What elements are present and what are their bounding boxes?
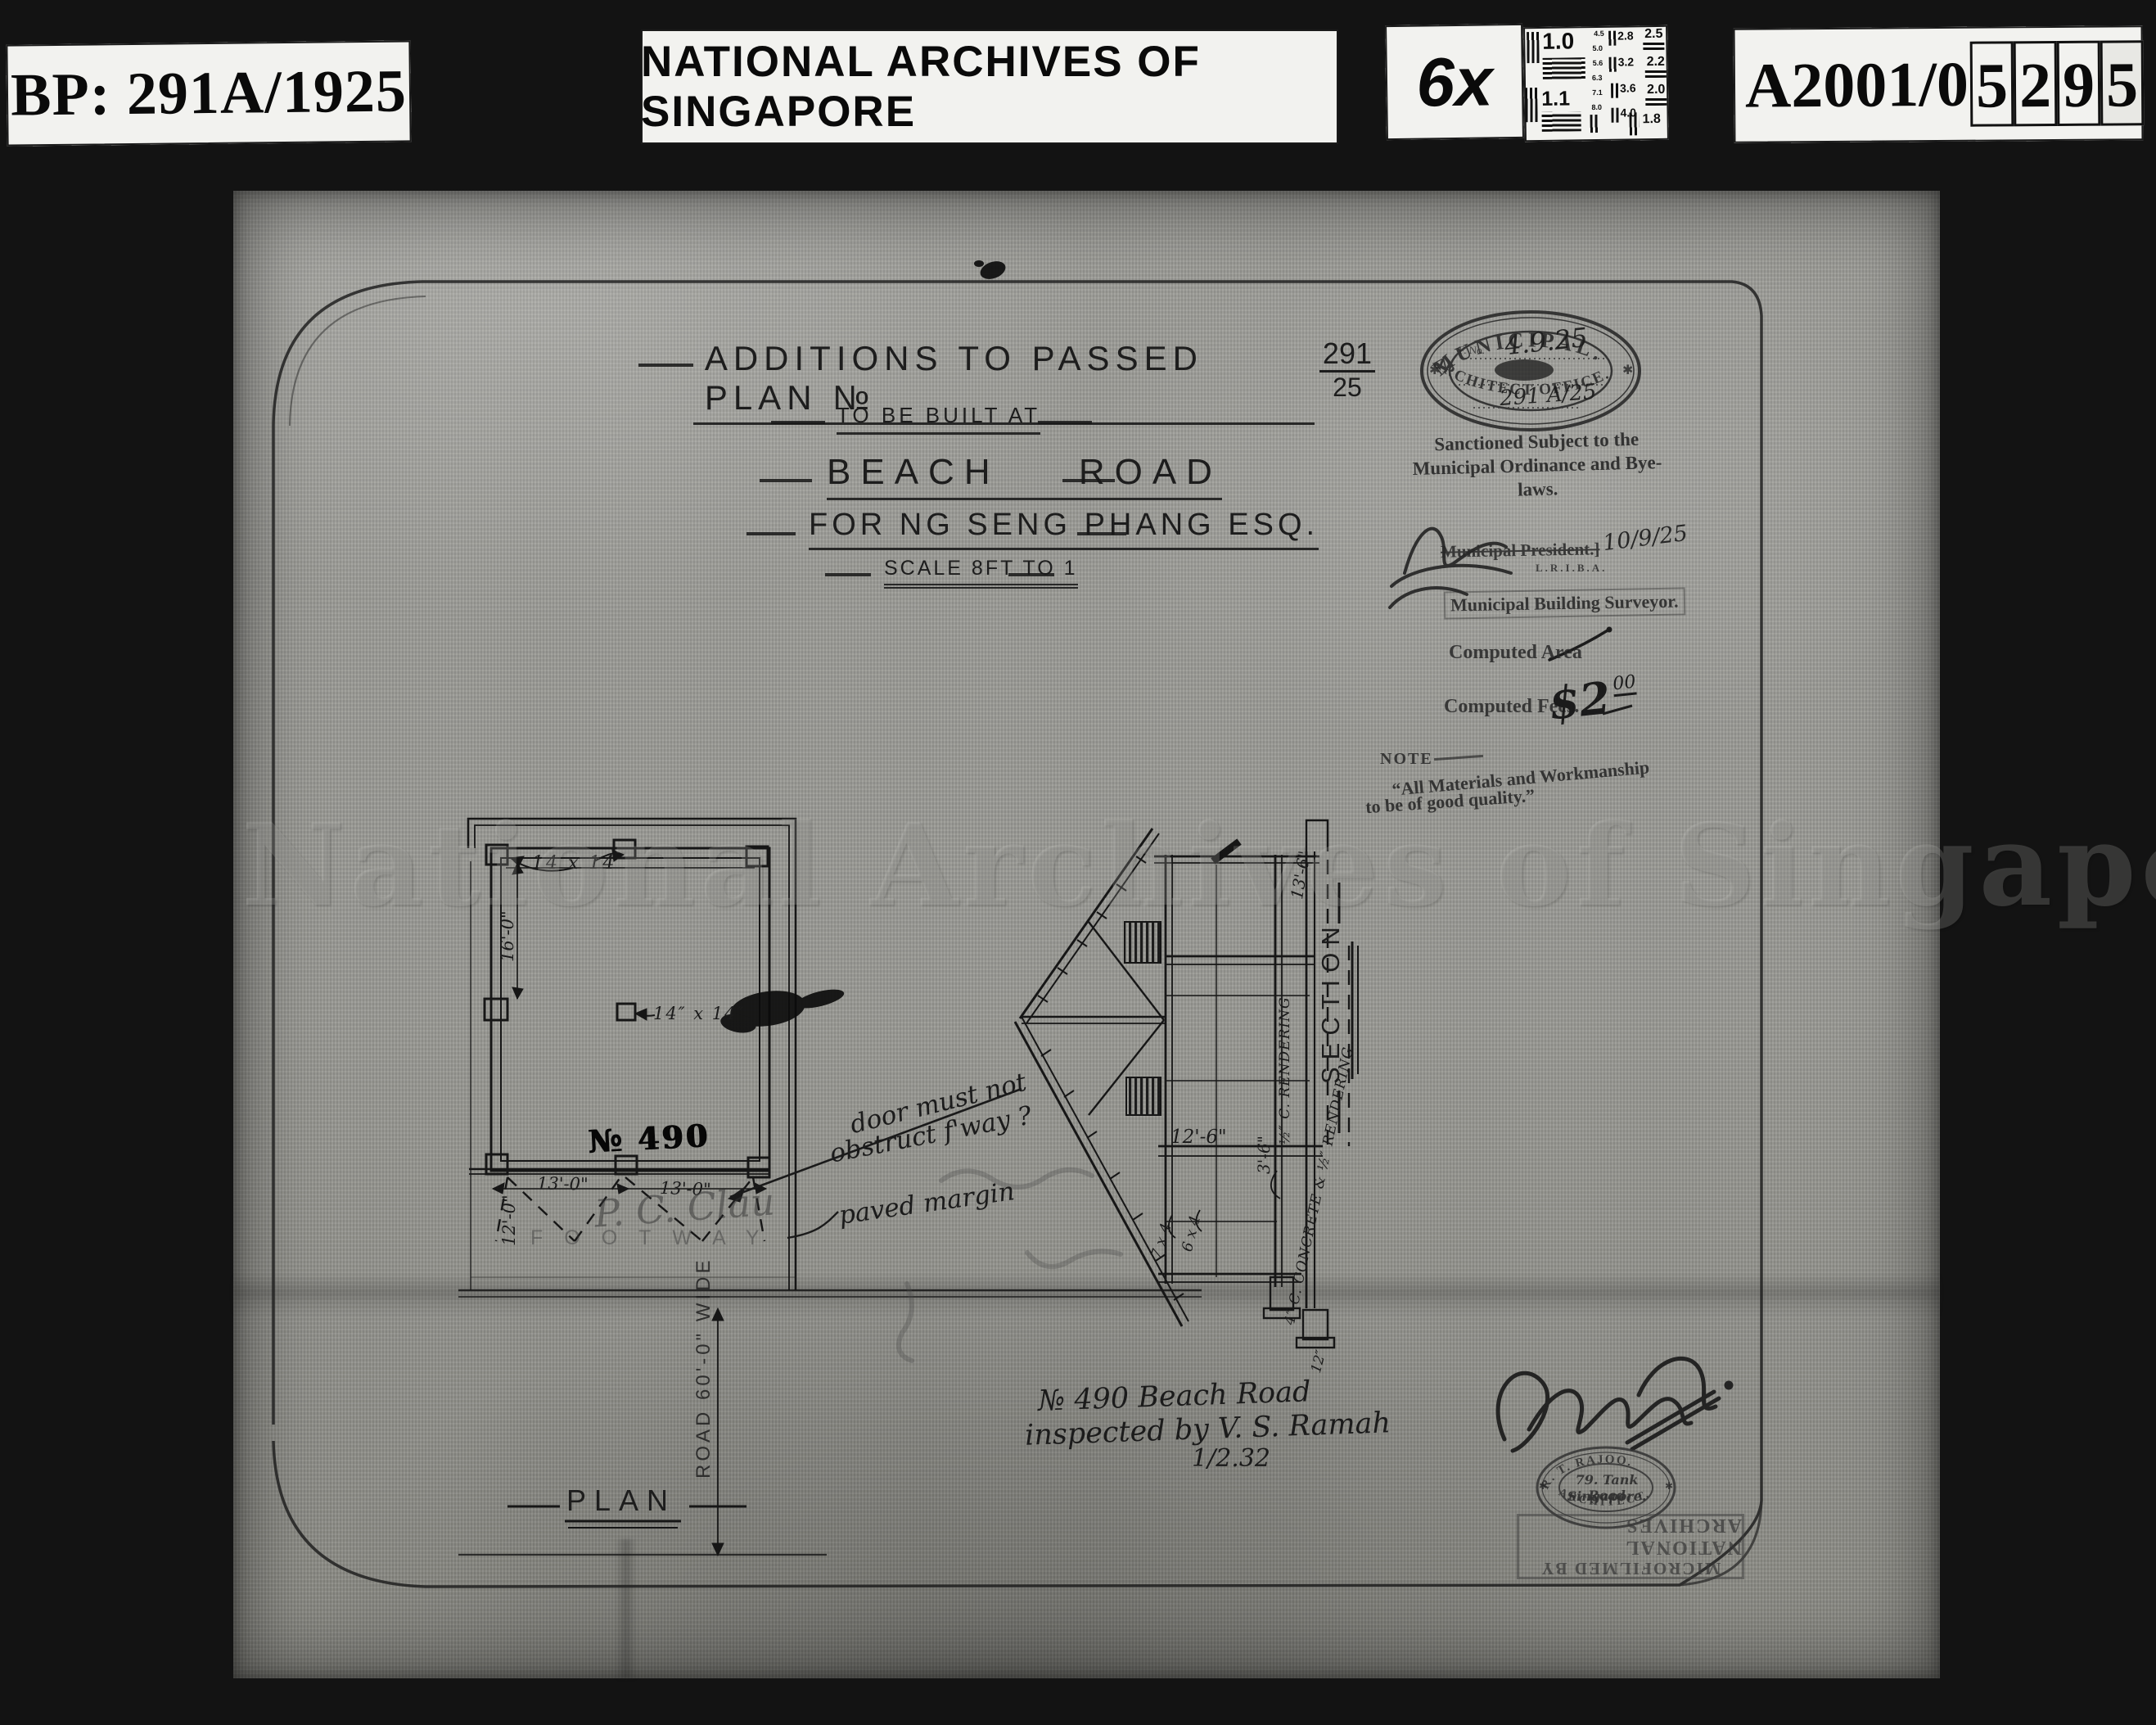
test-bars bbox=[1609, 57, 1617, 72]
test-chart-value: 1.0 bbox=[1542, 28, 1574, 55]
plan-number-top: 291 bbox=[1319, 339, 1375, 373]
test-bars bbox=[1527, 32, 1540, 63]
test-chart-value: 1.1 bbox=[1541, 87, 1570, 111]
test-chart-value: 2.5 bbox=[1644, 27, 1662, 42]
inspection-note-line3: 1/2.32 bbox=[1192, 1444, 1270, 1473]
dash-line bbox=[1062, 479, 1115, 482]
archives-title-label: NATIONAL ARCHIVES OF SINGAPORE bbox=[641, 37, 1338, 137]
plan-number-fraction: 291 25 bbox=[1319, 339, 1375, 400]
title-line4: For Ng Seng Phang Esq. bbox=[809, 508, 1319, 550]
computed-area-label: Computed Area bbox=[1449, 642, 1582, 664]
test-bars bbox=[1643, 42, 1664, 50]
accession-digit-tile: 2 bbox=[2014, 41, 2058, 126]
test-bars bbox=[1525, 88, 1538, 122]
plan-road-label: ROAD 60'-0" WIDE bbox=[692, 1258, 715, 1479]
dash-line bbox=[638, 364, 693, 367]
test-bars bbox=[1541, 111, 1581, 132]
test-bars bbox=[1629, 112, 1639, 135]
fees-cents: 00 bbox=[1612, 671, 1637, 697]
plan-dim-12: 12'-0" bbox=[499, 1194, 519, 1246]
architect-stamp-star-left: ✱ bbox=[1539, 1480, 1547, 1492]
test-chart-value: 1.8 bbox=[1642, 112, 1660, 127]
accession-digit-tile: 5 bbox=[1970, 41, 2014, 126]
test-chart-value: 7.1 bbox=[1592, 88, 1603, 97]
test-bars bbox=[1611, 84, 1618, 98]
archives-title-box: NATIONAL ARCHIVES OF SINGAPORE bbox=[641, 29, 1338, 144]
architect-stamp-star-right: ✱ bbox=[1665, 1480, 1673, 1492]
dash-line bbox=[760, 479, 812, 482]
test-chart-value: 3.6 bbox=[1620, 81, 1636, 94]
accession-prefix: A2001/0 bbox=[1745, 47, 1969, 123]
test-chart-value: 3.2 bbox=[1618, 55, 1635, 68]
plan-number-bottom: 25 bbox=[1333, 373, 1362, 400]
dash-line bbox=[771, 421, 825, 424]
title-line2: To Be Built At bbox=[837, 403, 1040, 435]
plan-dim-13a: 13'-0" bbox=[537, 1173, 589, 1194]
municipal-stamp-field1: F. No. bbox=[1459, 344, 1485, 357]
section-dim-12-6: 12'-6" bbox=[1170, 1127, 1227, 1148]
test-bars bbox=[1645, 70, 1667, 78]
test-chart-value: 2.2 bbox=[1647, 55, 1665, 70]
test-chart-value: 2.0 bbox=[1647, 83, 1665, 97]
president-stamp: Municipal President.] bbox=[1441, 539, 1600, 562]
dash-line bbox=[1077, 532, 1126, 535]
plan-title-label: PLAN bbox=[566, 1483, 676, 1518]
architect-signature bbox=[1498, 1358, 1731, 1451]
test-chart-value: 5.0 bbox=[1592, 44, 1603, 52]
architect-stamp-address2: Singapore. bbox=[1562, 1488, 1652, 1504]
test-bars bbox=[1543, 57, 1585, 79]
surveyor-stamp: Municipal Building Surveyor. bbox=[1444, 587, 1685, 619]
fees-dollars: $2 bbox=[1546, 671, 1612, 730]
test-chart-value: 2.8 bbox=[1617, 29, 1634, 42]
section-rendering-note: ½″ C. RENDERING bbox=[1277, 996, 1293, 1145]
municipal-stamp-star-left: ✱ bbox=[1429, 362, 1440, 378]
test-bars bbox=[1608, 31, 1616, 46]
dash-line bbox=[1038, 421, 1092, 424]
test-bars bbox=[1645, 97, 1667, 106]
sanction-line2: Municipal Ordinance and Bye-laws. bbox=[1406, 451, 1669, 505]
qualifications-text: L.R.I.B.A. bbox=[1536, 562, 1607, 575]
accession-number-box: A2001/0 5 2 9 5 bbox=[1734, 25, 2144, 142]
bp-number-label: BP: 291A/1925 bbox=[11, 56, 408, 130]
microfilm-scan-page: MUNICIPAL. ARCHITECT OFFICE. R. T. RAJOO… bbox=[0, 0, 2156, 1725]
plan-house-number: № 490 bbox=[587, 1117, 710, 1160]
test-chart-value: 8.0 bbox=[1591, 103, 1602, 111]
plan-footway-label: FOOTWAY bbox=[530, 1226, 781, 1250]
archives-watermark: National Archives of Singapore bbox=[241, 798, 1944, 932]
accession-digit-tile: 5 bbox=[2100, 40, 2145, 125]
municipal-stamp-star-right: ✱ bbox=[1622, 362, 1633, 378]
bp-number-box: BP: 291A/1925 bbox=[6, 40, 411, 146]
microfilm-stamp-line1: MICROFILMED BY bbox=[1540, 1559, 1721, 1579]
dash-line bbox=[1008, 573, 1054, 576]
accession-digit-tile: 9 bbox=[2057, 41, 2101, 126]
microfilm-stamp-line2: NATIONAL ARCHIVES bbox=[1519, 1515, 1742, 1559]
note-label: NOTE bbox=[1380, 750, 1433, 769]
plan-post-label-center: 14″ x 14″ bbox=[653, 1004, 745, 1023]
test-bars bbox=[1590, 115, 1599, 133]
test-chart-value: 4.5 bbox=[1594, 29, 1604, 38]
resolution-test-chart: 1.0 1.1 4.5 5.0 5.6 6.3 7.1 8.0 2.8 3.2 … bbox=[1523, 25, 1669, 142]
test-chart-value: 5.6 bbox=[1593, 59, 1603, 67]
test-chart-value: 6.3 bbox=[1592, 74, 1603, 82]
dash-line bbox=[746, 532, 796, 535]
magnification-label: 6x bbox=[1416, 42, 1494, 122]
dash-line bbox=[825, 573, 871, 576]
test-bars bbox=[1611, 108, 1618, 123]
section-title-label: SECTION bbox=[1316, 919, 1346, 1084]
microfilm-stamp: MICROFILMED BY NATIONAL ARCHIVES bbox=[1517, 1514, 1744, 1579]
sanction-stamp: Sanctioned Subject to the Municipal Ordi… bbox=[1405, 427, 1669, 505]
section-dim-3-6: 3'-6" bbox=[1254, 1136, 1274, 1174]
magnification-box: 6x bbox=[1385, 24, 1524, 140]
fees-value: $2 00 bbox=[1546, 669, 1640, 730]
title-line3: Beach Road bbox=[827, 452, 1222, 500]
